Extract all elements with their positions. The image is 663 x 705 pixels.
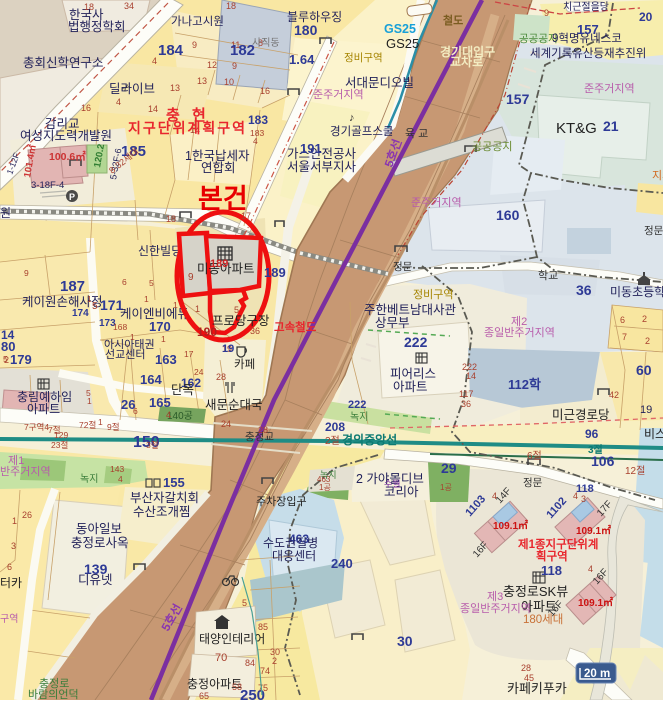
svg-text:100.6㎡: 100.6㎡ <box>49 150 86 163</box>
svg-text:157: 157 <box>506 91 530 107</box>
svg-text:4: 4 <box>152 56 157 66</box>
svg-text:184: 184 <box>158 42 184 59</box>
svg-text:28: 28 <box>521 663 531 673</box>
svg-text:168: 168 <box>113 322 127 332</box>
svg-text:공공공지: 공공공지 <box>472 140 512 153</box>
svg-text:18: 18 <box>226 1 236 11</box>
svg-text:가스안전공사: 가스안전공사 <box>287 147 357 161</box>
svg-text:14: 14 <box>466 371 476 381</box>
svg-text:19: 19 <box>222 343 234 355</box>
svg-text:카페키푸카: 카페키푸카 <box>507 681 567 696</box>
svg-text:14: 14 <box>148 104 158 114</box>
svg-text:법행정학회: 법행정학회 <box>68 19 126 34</box>
svg-text:아파트: 아파트 <box>393 380 428 394</box>
svg-text:65: 65 <box>199 691 209 700</box>
svg-text:충정로사옥: 충정로사옥 <box>71 536 129 550</box>
svg-text:제3: 제3 <box>487 590 503 603</box>
svg-text:17: 17 <box>241 211 251 221</box>
svg-text:4: 4 <box>573 491 578 501</box>
svg-text:3절: 3절 <box>146 440 159 450</box>
svg-text:21: 21 <box>603 118 619 134</box>
svg-text:28: 28 <box>216 372 226 382</box>
svg-text:수도권질병: 수도권질병 <box>263 536 318 550</box>
svg-text:109.1㎡: 109.1㎡ <box>576 524 611 537</box>
svg-text:4: 4 <box>118 474 123 484</box>
svg-text:녹지: 녹지 <box>320 470 337 480</box>
svg-text:12절: 12절 <box>625 464 645 477</box>
svg-text:1: 1 <box>87 294 92 304</box>
svg-text:187: 187 <box>60 278 85 295</box>
svg-text:학교: 학교 <box>538 269 558 282</box>
svg-text:2: 2 <box>645 336 650 346</box>
svg-text:사직동: 사직동 <box>252 37 280 49</box>
svg-text:카페: 카페 <box>234 358 255 371</box>
svg-text:정문: 정문 <box>393 261 413 273</box>
svg-text:190: 190 <box>197 325 217 339</box>
svg-text:준주거지역: 준주거지역 <box>411 196 462 209</box>
svg-text:교차로: 교차로 <box>450 54 483 69</box>
svg-text:6: 6 <box>133 406 138 416</box>
svg-text:160: 160 <box>496 207 520 223</box>
svg-text:28: 28 <box>258 425 268 435</box>
svg-text:75: 75 <box>258 683 268 693</box>
svg-text:9: 9 <box>232 61 237 71</box>
svg-text:36: 36 <box>250 326 260 336</box>
svg-text:1: 1 <box>87 396 92 406</box>
svg-text:9: 9 <box>24 268 29 278</box>
svg-text:정비구역: 정비구역 <box>413 288 453 301</box>
svg-text:143: 143 <box>110 464 124 474</box>
svg-text:165: 165 <box>149 395 171 410</box>
svg-text:42: 42 <box>609 390 619 400</box>
svg-text:9: 9 <box>544 8 549 18</box>
svg-text:179: 179 <box>10 352 32 367</box>
svg-text:24: 24 <box>194 367 204 377</box>
svg-text:112학: 112학 <box>508 377 541 392</box>
svg-text:피어리스: 피어리스 <box>390 367 436 381</box>
svg-text:96: 96 <box>585 427 599 441</box>
svg-text:17: 17 <box>184 349 194 359</box>
svg-text:23절: 23절 <box>51 440 68 450</box>
svg-text:GS25: GS25 <box>384 22 416 36</box>
svg-text:동아일보: 동아일보 <box>76 522 122 536</box>
svg-text:딜라이브: 딜라이브 <box>109 82 155 96</box>
svg-text:서울서부지사: 서울서부지사 <box>287 160 357 174</box>
svg-text:4: 4 <box>253 136 258 146</box>
svg-text:1: 1 <box>98 417 103 427</box>
svg-text:9: 9 <box>192 40 197 50</box>
svg-text:준주거지역: 준주거지역 <box>584 82 635 95</box>
svg-text:18: 18 <box>166 214 176 224</box>
svg-text:7: 7 <box>622 332 627 342</box>
svg-text:189: 189 <box>210 258 228 270</box>
svg-text:♪: ♪ <box>349 112 355 124</box>
svg-text:부산자갈치회: 부산자갈치회 <box>130 491 199 505</box>
svg-text:183: 183 <box>248 113 268 127</box>
svg-text:경의중앙선: 경의중앙선 <box>342 432 397 447</box>
svg-text:12: 12 <box>207 60 217 70</box>
svg-text:5: 5 <box>149 278 154 288</box>
svg-text:18: 18 <box>84 2 94 12</box>
svg-text:세계기록유산등재추진위: 세계기록유산등재추진위 <box>530 47 646 60</box>
svg-text:주차장입구: 주차장입구 <box>256 495 307 508</box>
svg-text:구역: 구역 <box>0 613 18 625</box>
svg-text:70: 70 <box>215 652 227 664</box>
svg-text:6: 6 <box>620 315 625 325</box>
svg-text:16: 16 <box>81 103 91 113</box>
svg-text:본건: 본건 <box>198 184 248 214</box>
svg-text:155: 155 <box>163 475 185 490</box>
svg-text:189: 189 <box>264 265 286 280</box>
svg-text:109.1㎡: 109.1㎡ <box>578 596 613 609</box>
svg-text:180: 180 <box>294 22 318 38</box>
svg-text:수월: 수월 <box>384 478 401 489</box>
svg-text:주한베트남대사관: 주한베트남대사관 <box>364 303 457 317</box>
svg-text:117: 117 <box>459 389 473 399</box>
svg-text:지구단위계획구역: 지구단위계획구역 <box>128 120 247 136</box>
svg-text:1: 1 <box>173 300 178 310</box>
svg-text:디유넷: 디유넷 <box>78 573 113 587</box>
svg-text:1.64: 1.64 <box>289 52 315 67</box>
svg-text:새문순대국: 새문순대국 <box>205 398 263 412</box>
svg-text:208: 208 <box>325 420 345 434</box>
svg-text:9절: 9절 <box>107 422 120 432</box>
svg-text:녹지: 녹지 <box>350 411 368 423</box>
svg-text:1공: 1공 <box>440 483 452 492</box>
svg-text:정문: 정문 <box>523 477 543 489</box>
svg-text:45: 45 <box>524 673 534 683</box>
svg-text:84: 84 <box>245 658 255 668</box>
svg-text:1: 1 <box>12 516 17 526</box>
svg-text:신한빌딩: 신한빌딩 <box>138 244 182 258</box>
svg-text:종일반주거지역: 종일반주거지역 <box>484 325 555 339</box>
svg-text:획구역: 획구역 <box>536 549 568 563</box>
svg-text:아파트: 아파트 <box>27 402 60 416</box>
svg-text:1: 1 <box>130 332 135 342</box>
svg-text:20: 20 <box>639 10 653 24</box>
svg-text:치근절을당: 치근절을당 <box>563 0 609 13</box>
svg-text:육 교: 육 교 <box>405 127 428 140</box>
svg-text:터카: 터카 <box>0 576 22 590</box>
svg-text:반주거지역: 반주거지역 <box>0 465 51 478</box>
svg-text:준주거지역: 준주거지역 <box>313 88 364 101</box>
svg-text:1공: 1공 <box>319 483 331 492</box>
svg-text:13: 13 <box>197 76 207 86</box>
svg-text:대응센터: 대응센터 <box>272 549 316 563</box>
svg-text:13: 13 <box>170 83 180 93</box>
svg-text:191: 191 <box>300 141 322 156</box>
svg-text:GS25: GS25 <box>386 36 419 51</box>
svg-text:녹지: 녹지 <box>80 473 98 485</box>
svg-text:2: 2 <box>272 656 277 666</box>
svg-text:미동초등학: 미동초등학 <box>610 285 663 299</box>
svg-text:58: 58 <box>232 682 242 692</box>
svg-text:6: 6 <box>7 562 12 572</box>
svg-text:222: 222 <box>404 334 428 350</box>
svg-text:2: 2 <box>642 314 647 324</box>
svg-text:6: 6 <box>122 277 127 287</box>
svg-text:총회신학연구소: 총회신학연구소 <box>23 56 104 70</box>
svg-text:129: 129 <box>54 430 68 440</box>
svg-text:비스: 비스 <box>644 427 663 441</box>
svg-text:6절: 6절 <box>527 449 542 462</box>
svg-text:정문: 정문 <box>644 225 663 237</box>
svg-text:36: 36 <box>576 282 592 298</box>
svg-text:3: 3 <box>11 541 16 551</box>
svg-text:프로당구장: 프로당구장 <box>212 314 270 328</box>
svg-text:단독: 단독 <box>171 383 194 397</box>
svg-text:1: 1 <box>195 304 200 314</box>
svg-text:2절: 2절 <box>325 434 340 447</box>
svg-text:118: 118 <box>541 563 562 578</box>
svg-text:7구역4: 7구역4 <box>24 422 49 432</box>
svg-text:174: 174 <box>72 308 89 319</box>
svg-text:바람의언덕: 바람의언덕 <box>28 688 79 700</box>
svg-text:원: 원 <box>0 206 11 220</box>
svg-text:72절: 72절 <box>79 420 96 430</box>
svg-text:157: 157 <box>577 22 599 37</box>
svg-text:종일반주거지역: 종일반주거지역 <box>460 601 531 615</box>
svg-text:미근경로당: 미근경로당 <box>552 408 610 422</box>
svg-text:34: 34 <box>124 1 134 11</box>
svg-text:24: 24 <box>221 419 231 429</box>
svg-text:고속철도: 고속철도 <box>274 320 317 334</box>
svg-text:5: 5 <box>242 598 247 608</box>
svg-text:3-18F-4: 3-18F-4 <box>31 180 64 191</box>
svg-text:5: 5 <box>234 305 239 315</box>
svg-text:5: 5 <box>92 301 98 312</box>
svg-text:경기골프스쿨: 경기골프스쿨 <box>330 124 393 138</box>
svg-text:선교센터: 선교센터 <box>105 348 145 361</box>
svg-text:16: 16 <box>260 86 270 96</box>
svg-text:85: 85 <box>258 622 268 632</box>
svg-text:P: P <box>69 192 75 202</box>
svg-text:29: 29 <box>441 460 457 476</box>
svg-text:26: 26 <box>22 510 32 520</box>
svg-text:4: 4 <box>116 97 121 107</box>
svg-text:서대문디오빌: 서대문디오빌 <box>345 76 414 90</box>
svg-text:가나고시원: 가나고시원 <box>171 14 224 28</box>
svg-text:163: 163 <box>155 352 177 367</box>
svg-text:222: 222 <box>348 399 366 411</box>
svg-text:106: 106 <box>591 453 615 469</box>
svg-text:정비구역: 정비구역 <box>344 52 383 64</box>
svg-text:20 m: 20 m <box>584 668 610 680</box>
svg-text:164: 164 <box>140 372 162 387</box>
svg-text:충정로SK뷰: 충정로SK뷰 <box>503 584 568 599</box>
svg-text:4: 4 <box>588 564 593 574</box>
svg-text:19: 19 <box>640 404 652 416</box>
svg-text:60: 60 <box>636 362 652 378</box>
svg-text:240: 240 <box>331 556 353 571</box>
svg-text:36: 36 <box>461 399 471 409</box>
svg-text:KT&G: KT&G <box>556 120 597 137</box>
svg-text:제1종지구단위계: 제1종지구단위계 <box>518 537 598 551</box>
svg-text:철도: 철도 <box>443 13 463 27</box>
svg-text:수산조개찜: 수산조개찜 <box>133 505 191 519</box>
svg-text:74: 74 <box>260 666 270 676</box>
svg-text:연합회: 연합회 <box>201 161 236 175</box>
svg-text:여성지도력개발원: 여성지도력개발원 <box>20 129 112 143</box>
svg-text:상무부: 상무부 <box>375 316 410 330</box>
svg-text:30: 30 <box>397 633 413 649</box>
svg-text:109.1㎡: 109.1㎡ <box>493 519 528 532</box>
svg-text:4: 4 <box>166 410 171 420</box>
svg-text:5: 5 <box>3 354 8 364</box>
svg-text:지사: 지사 <box>652 169 663 182</box>
svg-text:1: 1 <box>161 334 166 344</box>
svg-text:80: 80 <box>1 339 15 354</box>
svg-text:10: 10 <box>224 77 234 87</box>
svg-text:170: 170 <box>149 319 171 334</box>
svg-text:1: 1 <box>144 294 149 304</box>
svg-text:9: 9 <box>188 272 194 283</box>
svg-text:3: 3 <box>581 494 586 504</box>
